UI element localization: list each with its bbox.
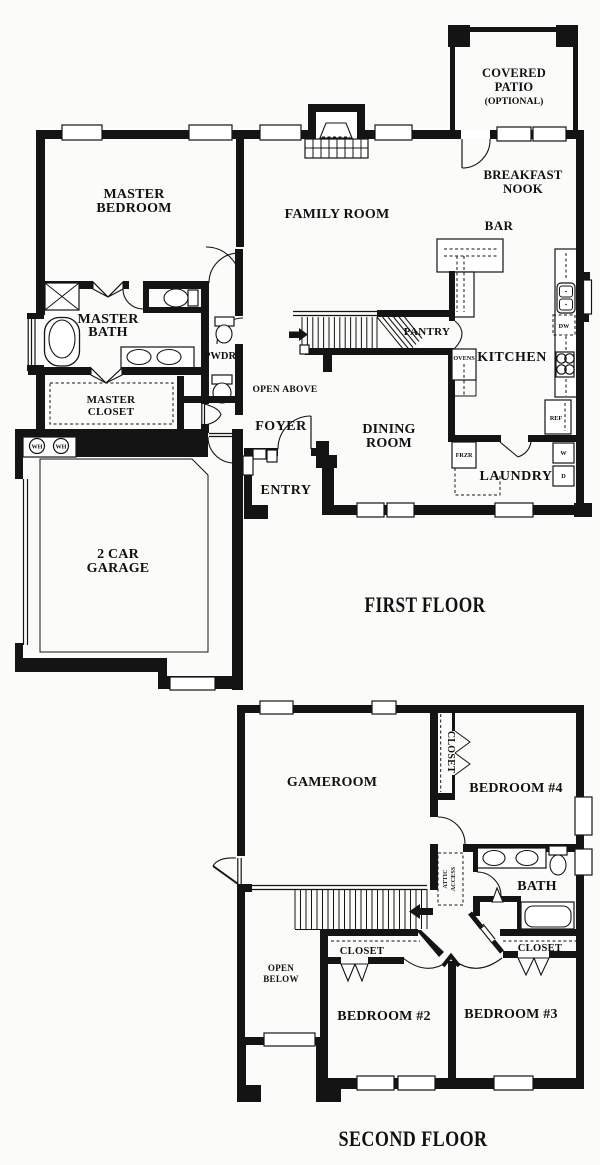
svg-text:SECOND FLOOR: SECOND FLOOR [339,1126,488,1151]
svg-text:PWDR: PWDR [204,351,236,362]
svg-text:FOYER: FOYER [255,419,307,434]
svg-text:CLOSET: CLOSET [340,946,384,957]
svg-text:WH: WH [31,444,42,451]
svg-text:ENTRY: ENTRY [260,483,311,498]
svg-text:NOOK: NOOK [503,182,543,196]
svg-text:(OPTIONAL): (OPTIONAL) [485,96,544,107]
svg-text:MASTER: MASTER [103,187,165,202]
svg-text:CLOSET: CLOSET [518,943,562,954]
svg-text:FIRST FLOOR: FIRST FLOOR [365,592,486,617]
svg-text:FRZR: FRZR [456,452,473,459]
svg-text:BATH: BATH [88,325,127,340]
svg-text:GAMEROOM: GAMEROOM [287,775,377,790]
svg-text:DW: DW [559,323,570,330]
svg-text:W: W [560,450,567,457]
svg-text:BAR: BAR [485,218,514,233]
svg-text:COVERED: COVERED [482,66,546,80]
svg-text:GARAGE: GARAGE [87,561,150,576]
svg-text:WH: WH [55,444,66,451]
svg-text:BEDROOM: BEDROOM [96,201,171,216]
svg-text:BEDROOM #4: BEDROOM #4 [469,781,562,796]
svg-text:ACCESS: ACCESS [450,866,457,891]
svg-text:2 CAR: 2 CAR [97,547,140,562]
svg-text:CLOSET: CLOSET [88,406,135,418]
svg-text:FAMILY ROOM: FAMILY ROOM [285,207,390,222]
svg-text:MASTER: MASTER [87,394,137,406]
svg-text:OVENS: OVENS [453,355,475,362]
svg-text:BREAKFAST: BREAKFAST [483,168,562,182]
svg-text:OPEN ABOVE: OPEN ABOVE [252,385,317,395]
svg-text:BATH: BATH [517,879,556,894]
svg-text:REF: REF [550,415,563,422]
svg-text:LAUNDRY: LAUNDRY [479,469,552,484]
svg-text:DINING: DINING [362,422,415,437]
svg-text:ATTIC: ATTIC [442,869,449,888]
svg-text:OPEN: OPEN [268,963,294,973]
svg-text:CLOSET: CLOSET [445,731,456,773]
svg-text:KITCHEN: KITCHEN [477,350,547,365]
svg-text:BEDROOM #3: BEDROOM #3 [464,1007,557,1022]
svg-text:ROOM: ROOM [366,436,412,451]
svg-text:BEDROOM #2: BEDROOM #2 [337,1009,430,1024]
svg-text:D: D [561,473,566,480]
svg-text:PANTRY: PANTRY [404,326,450,338]
svg-text:BELOW: BELOW [263,974,299,984]
svg-text:PATIO: PATIO [495,80,534,94]
